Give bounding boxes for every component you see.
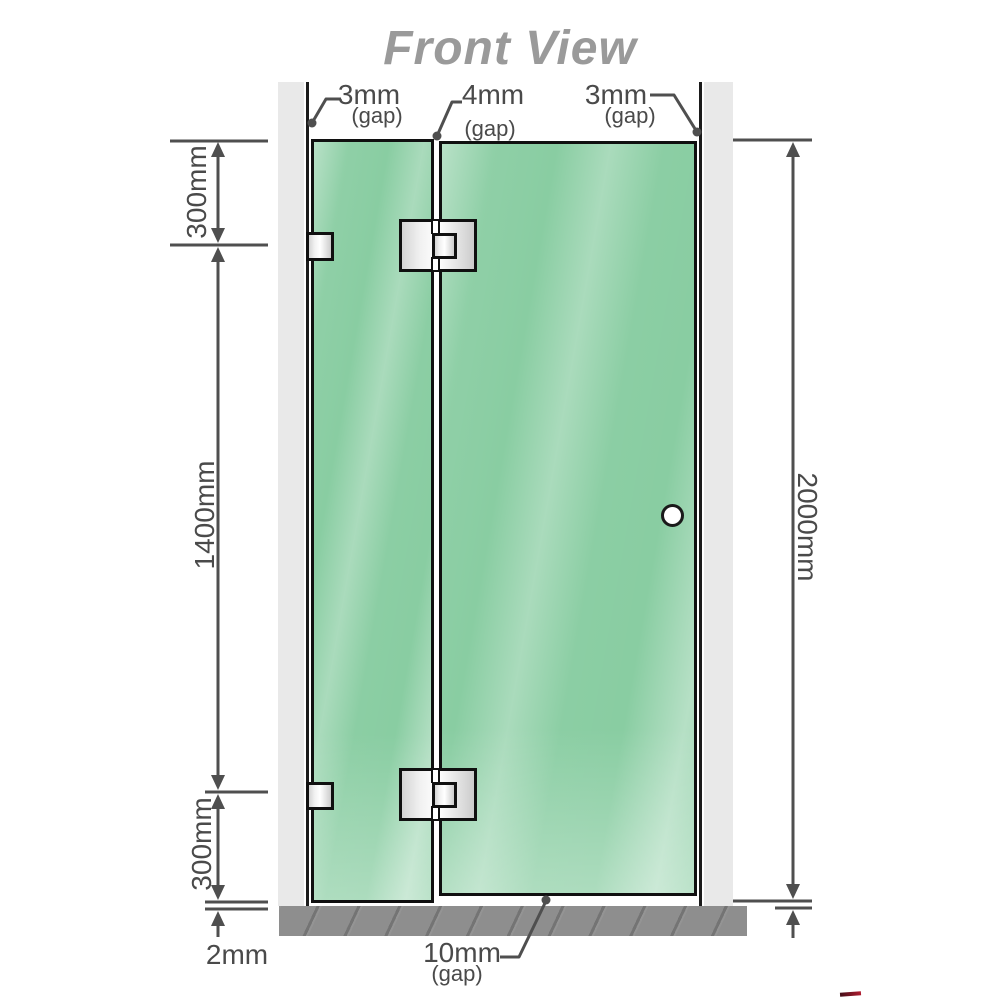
front-view-diagram: Front View (0, 0, 1000, 1000)
dim-label-floor-gap: 2mm (187, 940, 287, 970)
door-glass-panel (439, 141, 697, 896)
left-wall (278, 82, 304, 906)
dim-label-left-lower: 300mm (187, 784, 217, 904)
gap-label-bottom-qualifier: (gap) (412, 963, 502, 985)
hinge-bottom-clamp-tab (432, 782, 457, 808)
floor-base (279, 906, 747, 936)
right-wall (704, 82, 733, 906)
wall-bracket-top (306, 232, 334, 261)
dim-label-total-height: 2000mm (792, 457, 822, 597)
wall-bracket-bottom (306, 782, 334, 810)
gap-label-top-right-qualifier: (gap) (590, 105, 670, 127)
dim-label-left-middle: 1400mm (190, 445, 220, 585)
hinge-top-clamp-tab (432, 233, 457, 259)
diagram-title: Front View (255, 24, 765, 74)
gap-label-top-left-qualifier: (gap) (337, 105, 417, 127)
dim-label-left-upper: 300mm (182, 132, 212, 252)
gap-label-top-middle-qualifier: (gap) (450, 118, 530, 140)
door-knob (661, 504, 684, 527)
gap-label-top-middle-value: 4mm (453, 80, 533, 110)
logo-sliver (840, 991, 861, 996)
right-wall-edge-line (699, 82, 702, 906)
